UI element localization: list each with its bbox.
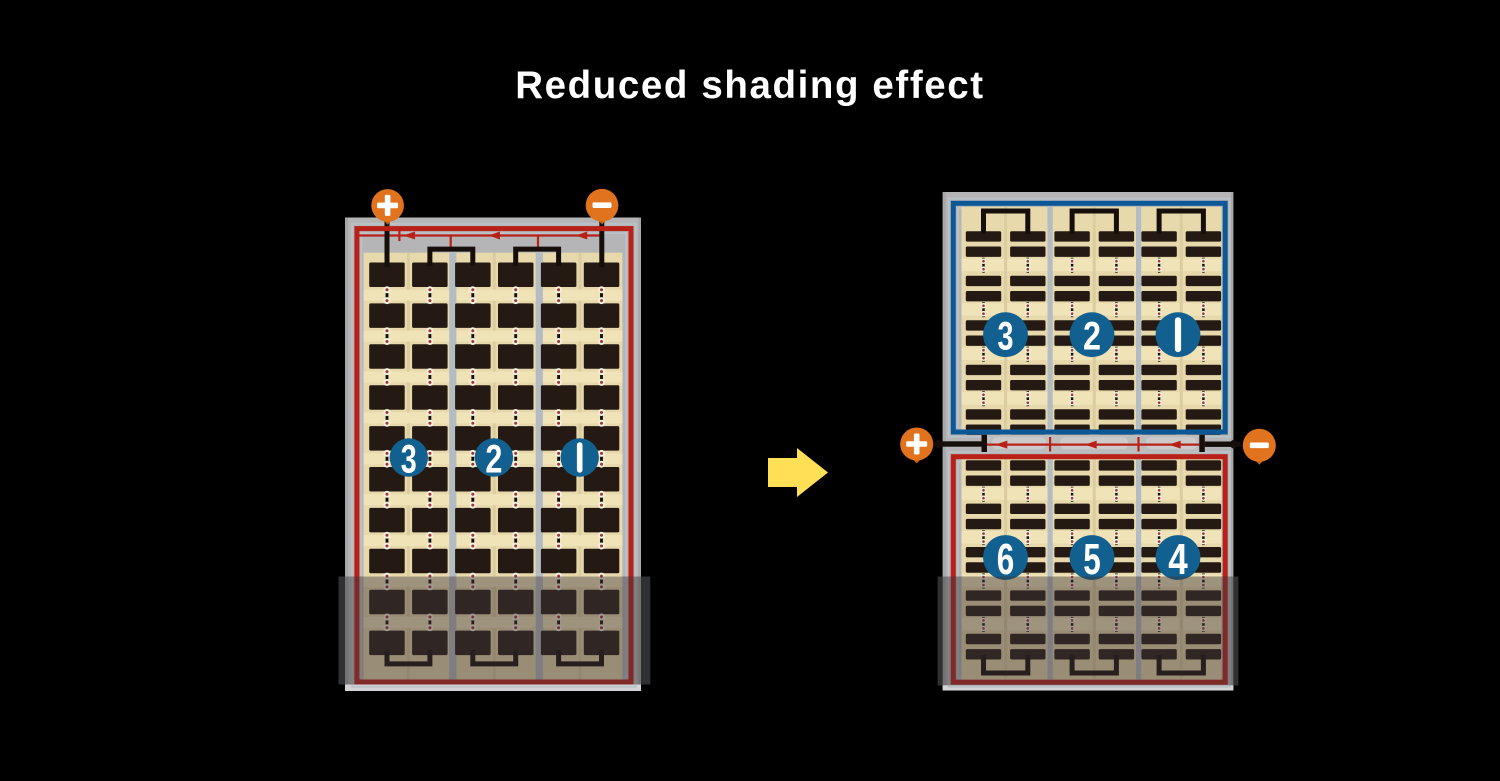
svg-text:2: 2 (485, 437, 502, 481)
svg-text:3: 3 (401, 437, 417, 481)
svg-text:3: 3 (998, 315, 1014, 359)
svg-text:2: 2 (1083, 315, 1101, 359)
svg-text:Reduced shading effect: Reduced shading effect (515, 64, 984, 107)
